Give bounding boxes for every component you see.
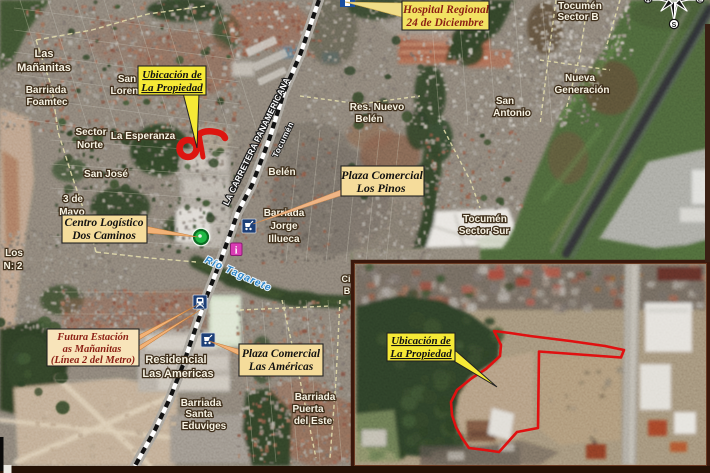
svg-text:Barriada: Barriada — [181, 398, 222, 409]
svg-text:N: 2: N: 2 — [4, 261, 23, 272]
svg-text:Residencial: Residencial — [145, 354, 206, 366]
svg-text:La Esperanza: La Esperanza — [111, 131, 176, 142]
svg-text:Tocumén: Tocumén — [463, 214, 507, 225]
svg-text:Las Americas: Las Americas — [142, 368, 213, 380]
svg-text:Sector: Sector — [75, 127, 106, 138]
svg-text:3 de: 3 de — [63, 194, 83, 205]
svg-text:Jorge: Jorge — [270, 221, 298, 232]
svg-text:Sector B: Sector B — [557, 12, 598, 23]
svg-text:del Este: del Este — [294, 416, 333, 427]
svg-text:Tocumén: Tocumén — [558, 1, 602, 12]
svg-text:Norte: Norte — [77, 140, 104, 151]
svg-text:B: B — [344, 286, 351, 296]
svg-text:Illueca: Illueca — [268, 234, 300, 245]
svg-text:Ci: Ci — [342, 274, 351, 284]
svg-text:Santa: Santa — [185, 409, 213, 420]
svg-text:Antonio: Antonio — [493, 108, 531, 119]
svg-text:San: San — [496, 96, 514, 107]
svg-text:Sector Sur: Sector Sur — [459, 226, 510, 237]
svg-text:San: San — [118, 74, 136, 85]
svg-text:Belén: Belén — [355, 114, 382, 125]
svg-text:Foamtec: Foamtec — [26, 97, 68, 108]
svg-text:Belén: Belén — [268, 167, 295, 178]
svg-text:Puerta: Puerta — [292, 404, 324, 415]
svg-text:San José: San José — [84, 169, 128, 180]
svg-text:Res. Nuevo: Res. Nuevo — [350, 102, 404, 113]
svg-text:Los: Los — [5, 248, 23, 259]
svg-text:Nueva: Nueva — [565, 73, 595, 84]
svg-text:Generación: Generación — [554, 85, 609, 96]
svg-text:Eduviges: Eduviges — [182, 421, 227, 432]
svg-text:Las: Las — [35, 48, 54, 60]
svg-text:Barriada: Barriada — [295, 392, 336, 403]
svg-text:Mañanitas: Mañanitas — [17, 62, 71, 74]
svg-text:i: i — [235, 246, 238, 257]
svg-text:Barriada: Barriada — [26, 85, 67, 96]
